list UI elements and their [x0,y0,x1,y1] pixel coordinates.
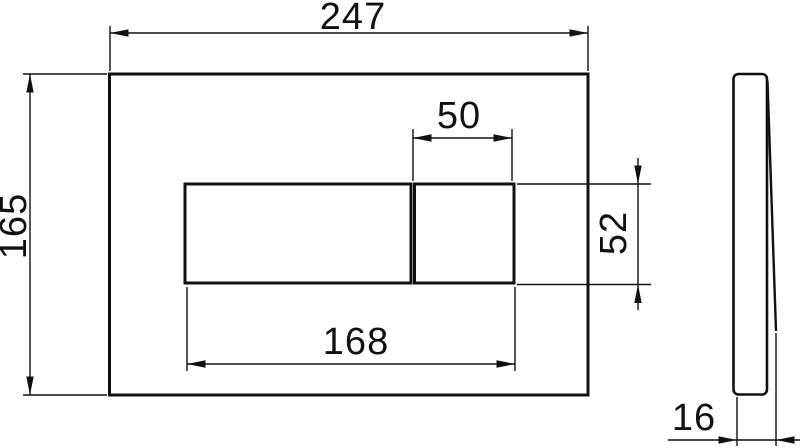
arrowhead-right [570,29,589,36]
arrowhead-left [776,436,795,443]
large-button-outline [185,184,411,283]
side-profile-front-face-line [768,81,777,331]
dim-label-plate-thickness: 16 [672,399,716,437]
small-button-outline [415,184,515,283]
side-profile-outline [734,74,768,395]
arrowhead-left [187,360,206,367]
dim-label-buttons-total-width: 168 [323,323,389,361]
arrowhead-down [26,377,33,396]
technical-drawing-page: 247 165 50 52 168 16 [0,0,800,448]
arrowhead-left [110,29,129,36]
arrowhead-up [26,74,33,93]
arrowhead-right [494,134,513,141]
dim-label-plate-height: 165 [0,193,33,259]
arrowhead-right [497,360,516,367]
dim-label-plate-width: 247 [320,0,386,36]
side-view [734,74,777,395]
arrowhead-up [634,285,641,304]
dimension-plate-height [23,74,107,395]
dim-label-small-button-width: 50 [437,97,481,135]
dim-label-button-height: 52 [595,211,633,255]
arrowhead-down [634,166,641,185]
arrowhead-right [719,436,738,443]
arrowhead-left [413,134,432,141]
technical-drawing-canvas [0,0,800,448]
